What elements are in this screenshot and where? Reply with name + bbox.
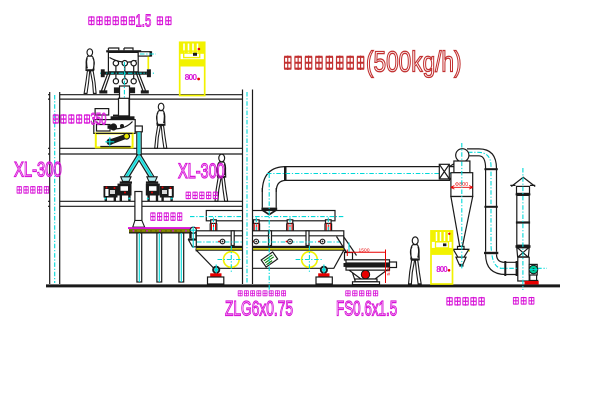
svg-text:800: 800	[436, 265, 448, 274]
svg-text:800: 800	[185, 72, 198, 82]
svg-text:(500kg/h): (500kg/h)	[366, 45, 462, 78]
svg-text:350: 350	[91, 110, 107, 129]
svg-text:XL-300: XL-300	[14, 158, 62, 181]
svg-text:ZLG6x0.75: ZLG6x0.75	[225, 297, 293, 321]
svg-text:XL-300: XL-300	[178, 159, 225, 182]
svg-text:FS0.6x1.5: FS0.6x1.5	[336, 296, 397, 320]
svg-text:1500: 1500	[359, 247, 370, 253]
svg-text:1.5: 1.5	[136, 11, 152, 31]
svg-text:545: 545	[386, 267, 392, 276]
